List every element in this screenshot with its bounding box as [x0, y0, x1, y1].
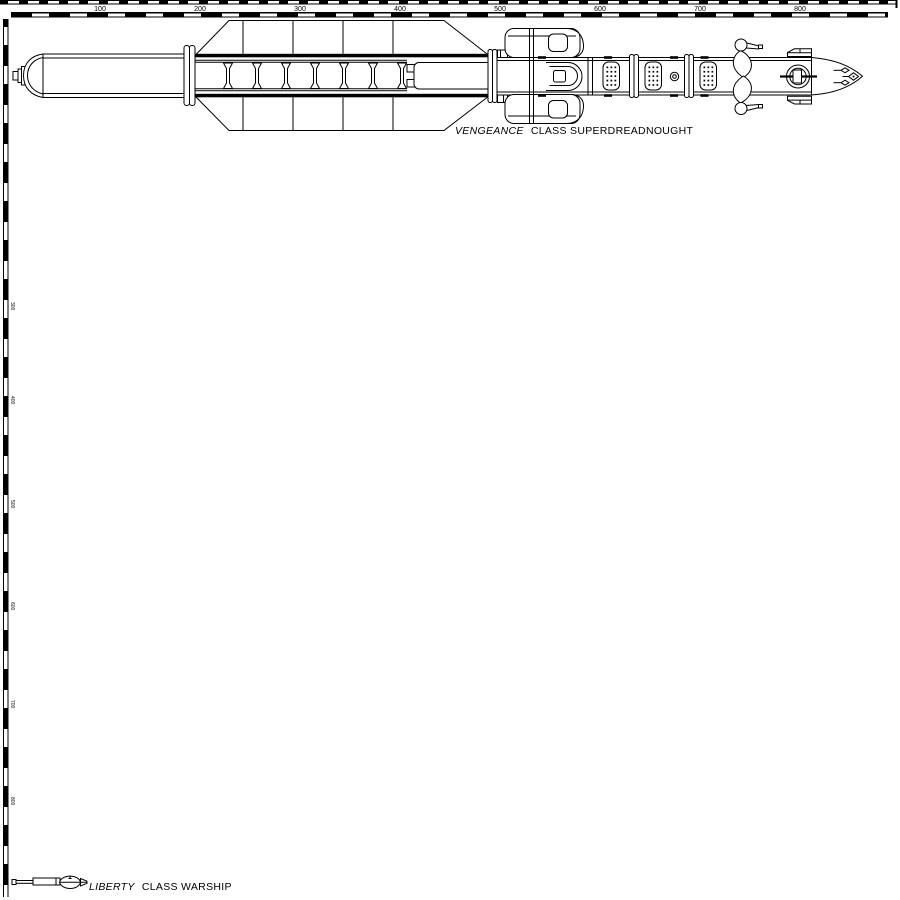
top-ruler-label: 800 [794, 6, 806, 13]
vengeance-collar-ring-fore [184, 46, 195, 106]
top-ruler-label: 100 [94, 6, 106, 13]
left-ruler-label: 300 [9, 302, 15, 311]
vengeance-forward-hull [43, 54, 186, 98]
liberty-needle-boom [16, 881, 33, 884]
liberty-nose-tip [12, 880, 16, 885]
left-ruler-label: 500 [9, 500, 15, 509]
liberty-label: LIBERTY CLASS WARSHIP [89, 881, 232, 893]
vengeance-label-type: CLASS SUPERDREADNOUGHT [531, 125, 694, 137]
liberty-label-class-name: LIBERTY [89, 881, 135, 893]
liberty-forward-hull [33, 878, 60, 885]
left-ruler-label: 600 [9, 602, 15, 611]
liberty-label-type: CLASS WARSHIP [142, 881, 232, 893]
top-ruler-label: 300 [294, 6, 306, 13]
page-background [0, 0, 900, 900]
vengeance-label-class-name: VENGEANCE [455, 125, 524, 137]
left-ruler-label: 800 [9, 797, 15, 806]
vengeance-collar-ring-mid [488, 50, 497, 103]
top-ruler-label: 200 [194, 6, 206, 13]
top-ruler-label: 600 [594, 6, 606, 13]
top-ruler-end-tick [896, 0, 898, 8]
liberty-main-body [60, 876, 81, 889]
vengeance-label: VENGEANCE CLASS SUPERDREADNOUGHT [455, 125, 694, 137]
top-ruler-label: 700 [694, 6, 706, 13]
left-ruler-label: 400 [9, 396, 15, 405]
top-ruler-label: 400 [394, 6, 406, 13]
vengeance-porthole [670, 72, 678, 80]
left-ruler-label: 700 [9, 700, 15, 709]
top-ruler-label: 500 [494, 6, 506, 13]
vengeance-horseshoe-reactor [546, 63, 582, 91]
blueprint-canvas: 100 200 300 400 500 600 700 800 300 400 … [0, 0, 900, 900]
